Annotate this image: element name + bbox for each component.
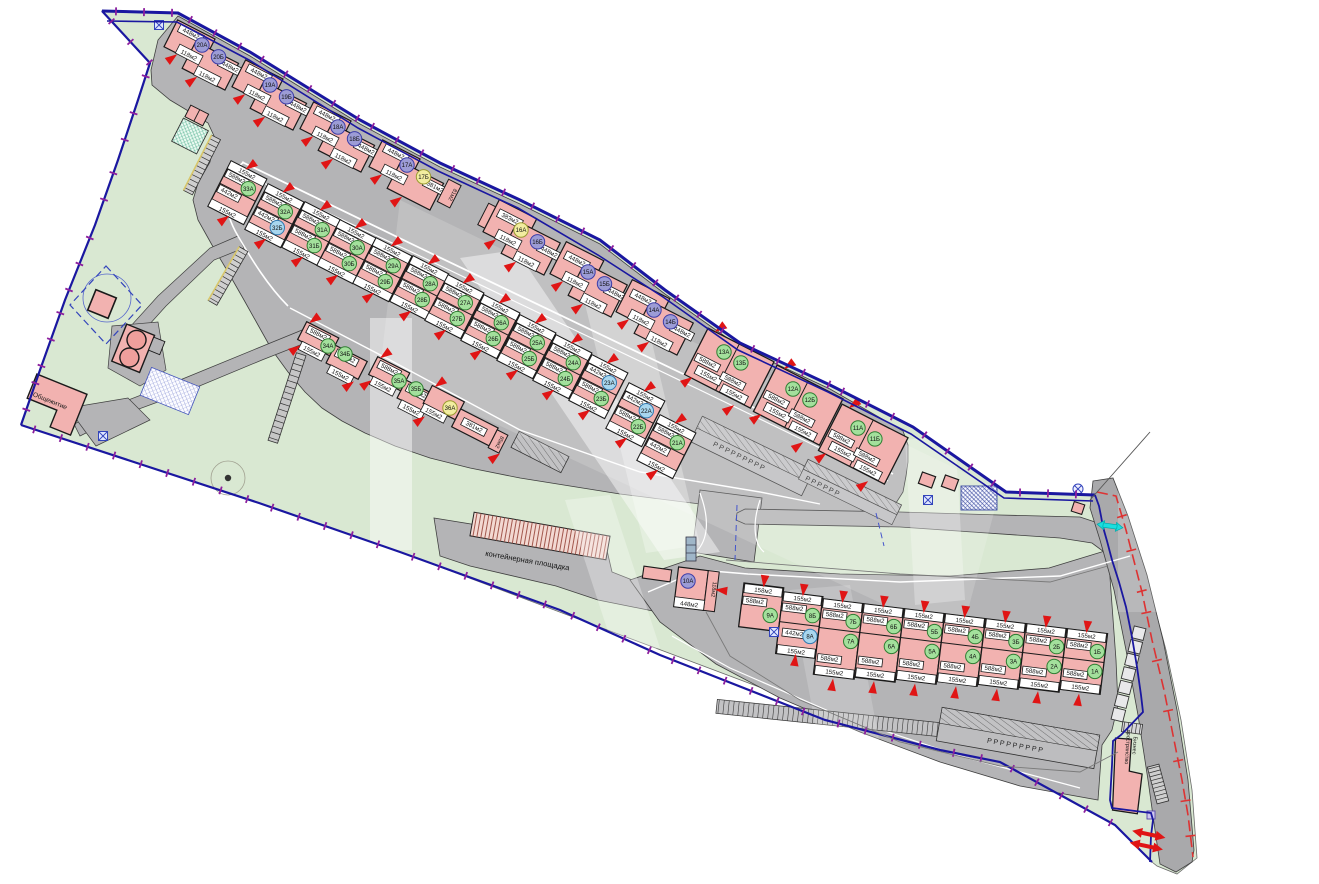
svg-text:17А: 17А [402, 163, 413, 169]
svg-text:33А: 33А [243, 187, 254, 193]
svg-text:16А: 16А [516, 228, 527, 234]
svg-text:32А: 32А [280, 210, 291, 216]
svg-text:30А: 30А [352, 246, 363, 252]
svg-text:34Б: 34Б [340, 352, 351, 358]
svg-text:8А: 8А [806, 635, 813, 641]
svg-text:19Б: 19Б [281, 95, 292, 101]
svg-text:Бизнес: Бизнес [1130, 736, 1137, 755]
svg-text:22А: 22А [641, 409, 652, 415]
svg-text:19А: 19А [265, 83, 276, 89]
svg-text:24А: 24А [568, 361, 579, 367]
svg-text:35А: 35А [394, 379, 405, 385]
svg-text:10А: 10А [683, 579, 694, 585]
svg-text:34А: 34А [323, 344, 334, 350]
svg-text:14А: 14А [649, 308, 660, 314]
svg-text:1А: 1А [1091, 670, 1098, 676]
svg-text:4А: 4А [969, 655, 976, 661]
svg-text:13А: 13А [719, 350, 730, 356]
svg-text:13Б: 13Б [736, 361, 747, 367]
svg-text:29Б: 29Б [380, 280, 391, 286]
svg-text:23Б: 23Б [596, 397, 607, 403]
svg-text:9А: 9А [767, 614, 774, 620]
svg-text:6Б: 6Б [890, 625, 897, 631]
svg-text:27А: 27А [460, 301, 471, 307]
svg-text:7А: 7А [847, 640, 854, 646]
svg-text:7Б: 7Б [849, 620, 856, 626]
svg-text:25А: 25А [532, 341, 543, 347]
svg-text:1Б: 1Б [1094, 650, 1101, 656]
svg-text:3А: 3А [1010, 660, 1017, 666]
svg-text:22Б: 22Б [633, 425, 644, 431]
svg-text:20Б: 20Б [213, 55, 224, 61]
svg-text:15А: 15А [583, 270, 594, 276]
svg-text:15Б: 15Б [599, 282, 610, 288]
svg-text:18А: 18А [333, 125, 344, 131]
svg-text:5А: 5А [928, 650, 935, 656]
svg-text:17Б: 17Б [418, 175, 429, 181]
svg-text:2Б: 2Б [1053, 645, 1060, 651]
svg-text:4Б: 4Б [972, 635, 979, 641]
svg-text:23А: 23А [604, 381, 615, 387]
svg-text:28А: 28А [425, 282, 436, 288]
svg-text:8Б: 8Б [809, 614, 816, 620]
svg-text:20А: 20А [197, 43, 208, 49]
svg-text:6А: 6А [888, 645, 895, 651]
svg-text:36А: 36А [445, 406, 456, 412]
svg-text:31Б: 31Б [309, 244, 320, 250]
svg-text:11А: 11А [853, 426, 863, 432]
svg-text:25Б: 25Б [524, 357, 535, 363]
svg-text:21А: 21А [672, 441, 683, 447]
svg-text:28Б: 28Б [417, 298, 428, 304]
svg-text:26Б: 26Б [488, 337, 499, 343]
svg-text:2А: 2А [1050, 665, 1057, 671]
svg-text:18Б: 18Б [349, 137, 360, 143]
svg-text:29А: 29А [388, 264, 399, 270]
svg-text:32Б: 32Б [272, 226, 283, 232]
svg-text:27Б: 27Б [452, 317, 463, 323]
svg-text:31А: 31А [317, 228, 328, 234]
svg-text:35Б: 35Б [411, 387, 422, 393]
svg-text:3Б: 3Б [1012, 640, 1019, 646]
svg-text:11Б: 11Б [870, 437, 880, 443]
svg-text:26А: 26А [496, 321, 507, 327]
svg-text:12А: 12А [788, 387, 799, 393]
svg-text:16Б: 16Б [532, 240, 543, 246]
svg-text:14Б: 14Б [665, 320, 676, 326]
svg-text:5Б: 5Б [931, 630, 938, 636]
svg-text:24Б: 24Б [560, 377, 571, 383]
svg-text:12Б: 12Б [805, 398, 816, 404]
svg-text:30Б: 30Б [344, 262, 355, 268]
